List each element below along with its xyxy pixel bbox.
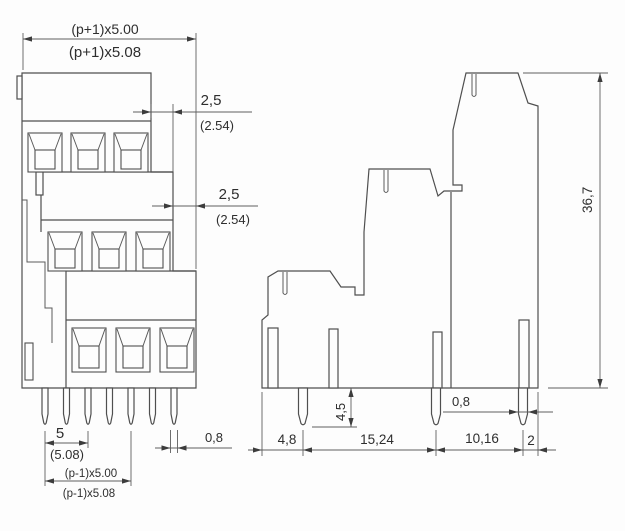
tier2-openings	[48, 232, 170, 271]
front-pins	[42, 388, 177, 424]
dim-tier-offset-mid-mm: 2,5	[219, 186, 240, 203]
dim-pitch-mid: 15,24	[360, 432, 394, 447]
dim-pin-row-span-mm: (p-1)x5.00	[65, 468, 117, 480]
dim-pin-width-side: 0,8	[452, 394, 470, 409]
dim-pin-pitch-mm: 5	[56, 425, 64, 442]
tier1-openings	[28, 133, 148, 172]
technical-drawing-page: (p+1)x5.00 (p+1)x5.08 2,5 (2.54) 2,5 (2.…	[0, 0, 625, 531]
dim-pitch-left: 4,8	[278, 432, 297, 447]
side-view	[262, 73, 538, 425]
front-step-slot	[25, 343, 33, 380]
dim-pin-pitch-alt: (5.08)	[50, 447, 84, 462]
dim-overall-width-alt: (p+1)x5.08	[69, 44, 141, 61]
dim-edge-offset: 2	[527, 433, 535, 448]
front-left-tab	[17, 76, 22, 99]
dim-tier-offset-top-alt: (2.54)	[200, 118, 234, 133]
dim-pitch-right: 10,16	[465, 431, 499, 446]
dim-overall-height: 36,7	[580, 187, 595, 213]
front-view	[17, 73, 196, 424]
terminal-block-dimension-drawing: (p+1)x5.00 (p+1)x5.08 2,5 (2.54) 2,5 (2.…	[0, 0, 625, 531]
tier3-openings	[72, 328, 194, 372]
dim-tier-offset-mid-alt: (2.54)	[216, 212, 250, 227]
dim-overall-width-mm: (p+1)x5.00	[71, 21, 139, 37]
dim-pin-width-front: 0,8	[205, 430, 223, 445]
dim-tier-offset-top-mm: 2,5	[201, 92, 222, 109]
dim-pin-row-span-alt: (p-1)x5.08	[63, 488, 115, 500]
dim-pin-protrusion: 4,5	[333, 403, 348, 421]
front-tier2-tab	[36, 172, 43, 195]
side-body-outline	[262, 73, 538, 388]
